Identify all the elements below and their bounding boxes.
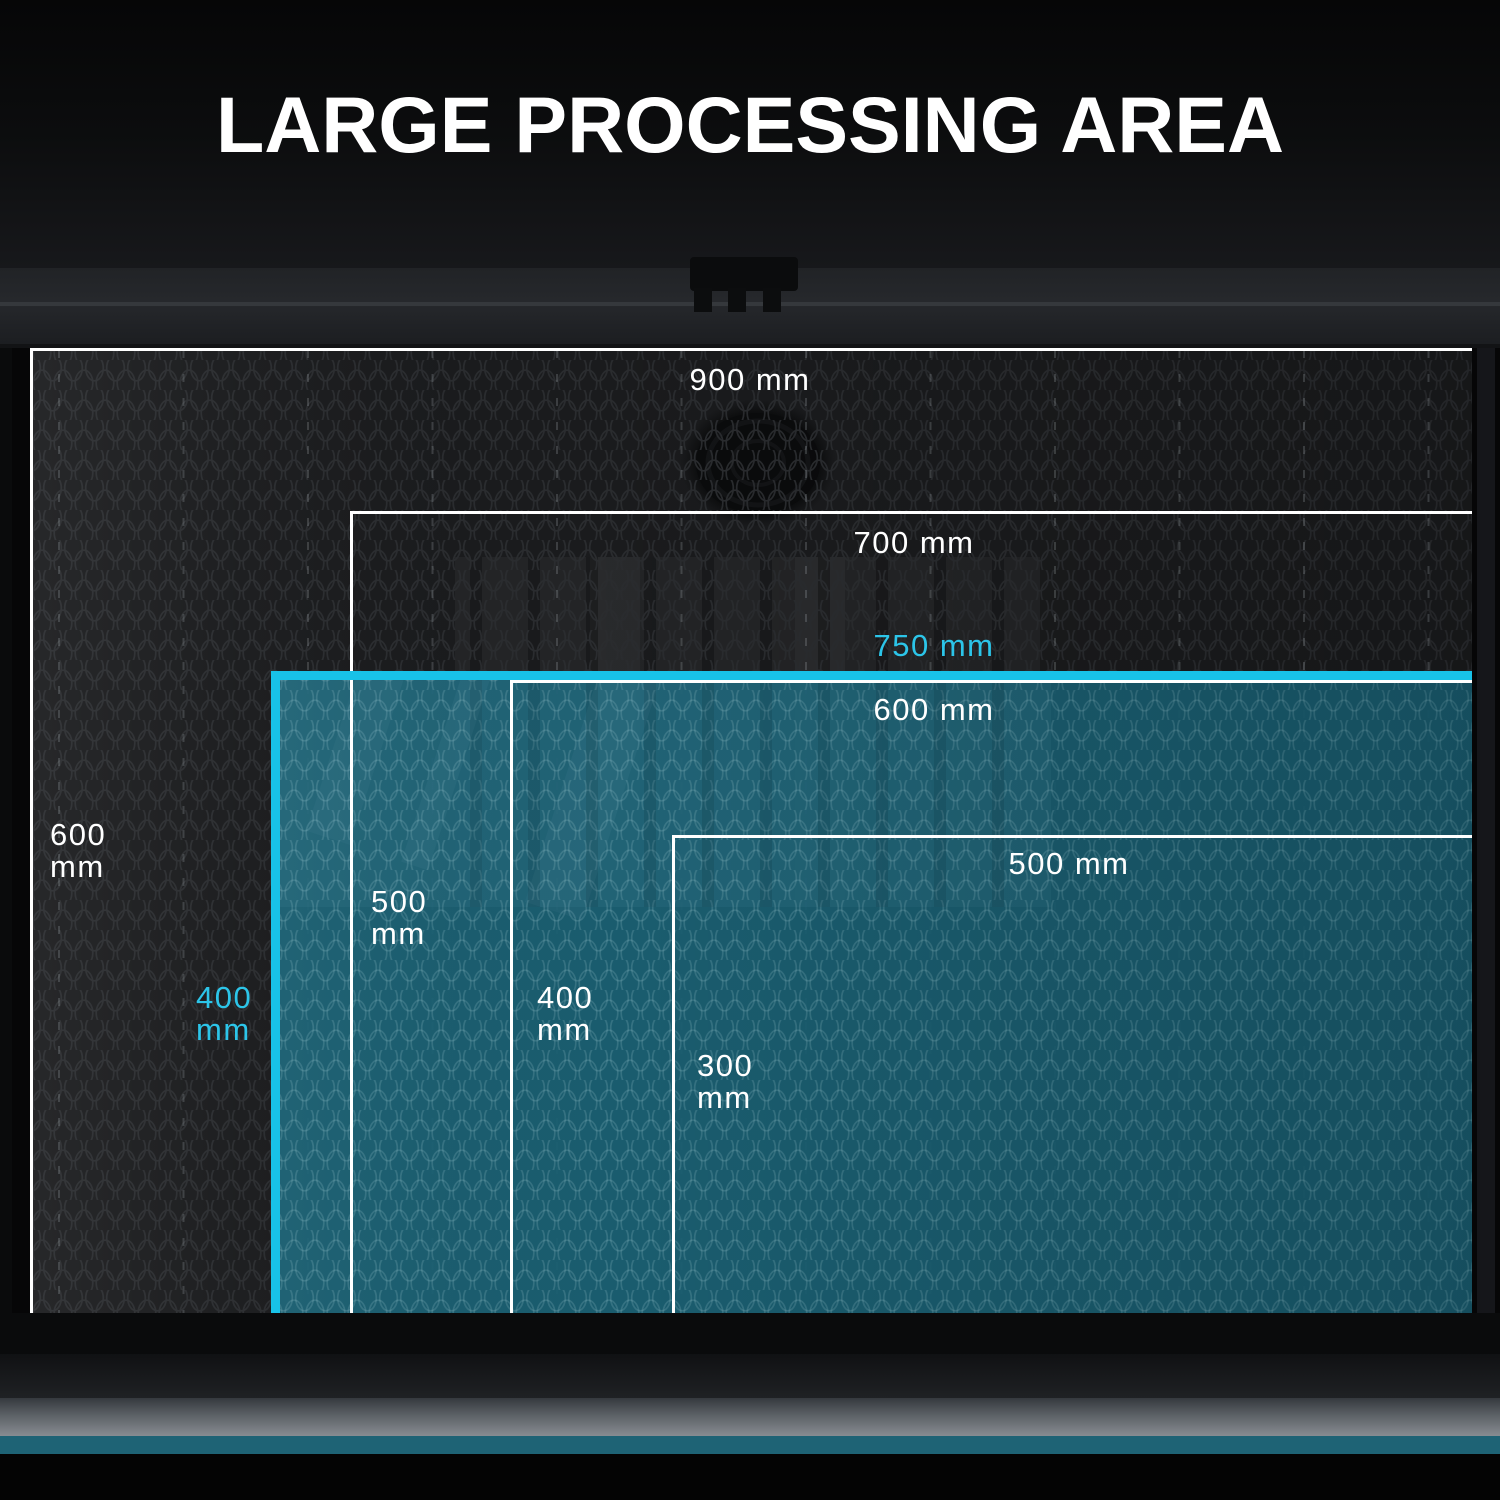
- svg-text:700 mm: 700 mm: [854, 525, 975, 560]
- svg-text:300: 300: [697, 1048, 753, 1083]
- svg-text:mm: mm: [537, 1012, 592, 1047]
- svg-text:mm: mm: [196, 1012, 251, 1047]
- svg-text:400: 400: [196, 980, 252, 1015]
- svg-text:900 mm: 900 mm: [690, 362, 811, 397]
- svg-text:500: 500: [371, 884, 427, 919]
- svg-text:600 mm: 600 mm: [874, 692, 995, 727]
- svg-text:mm: mm: [697, 1080, 752, 1115]
- svg-text:LARGE PROCESSING AREA: LARGE PROCESSING AREA: [216, 80, 1284, 169]
- svg-text:600: 600: [50, 817, 106, 852]
- svg-text:mm: mm: [50, 849, 105, 884]
- svg-text:400: 400: [537, 980, 593, 1015]
- svg-text:500 mm: 500 mm: [1009, 846, 1130, 881]
- svg-text:750 mm: 750 mm: [874, 628, 995, 663]
- svg-text:mm: mm: [371, 916, 426, 951]
